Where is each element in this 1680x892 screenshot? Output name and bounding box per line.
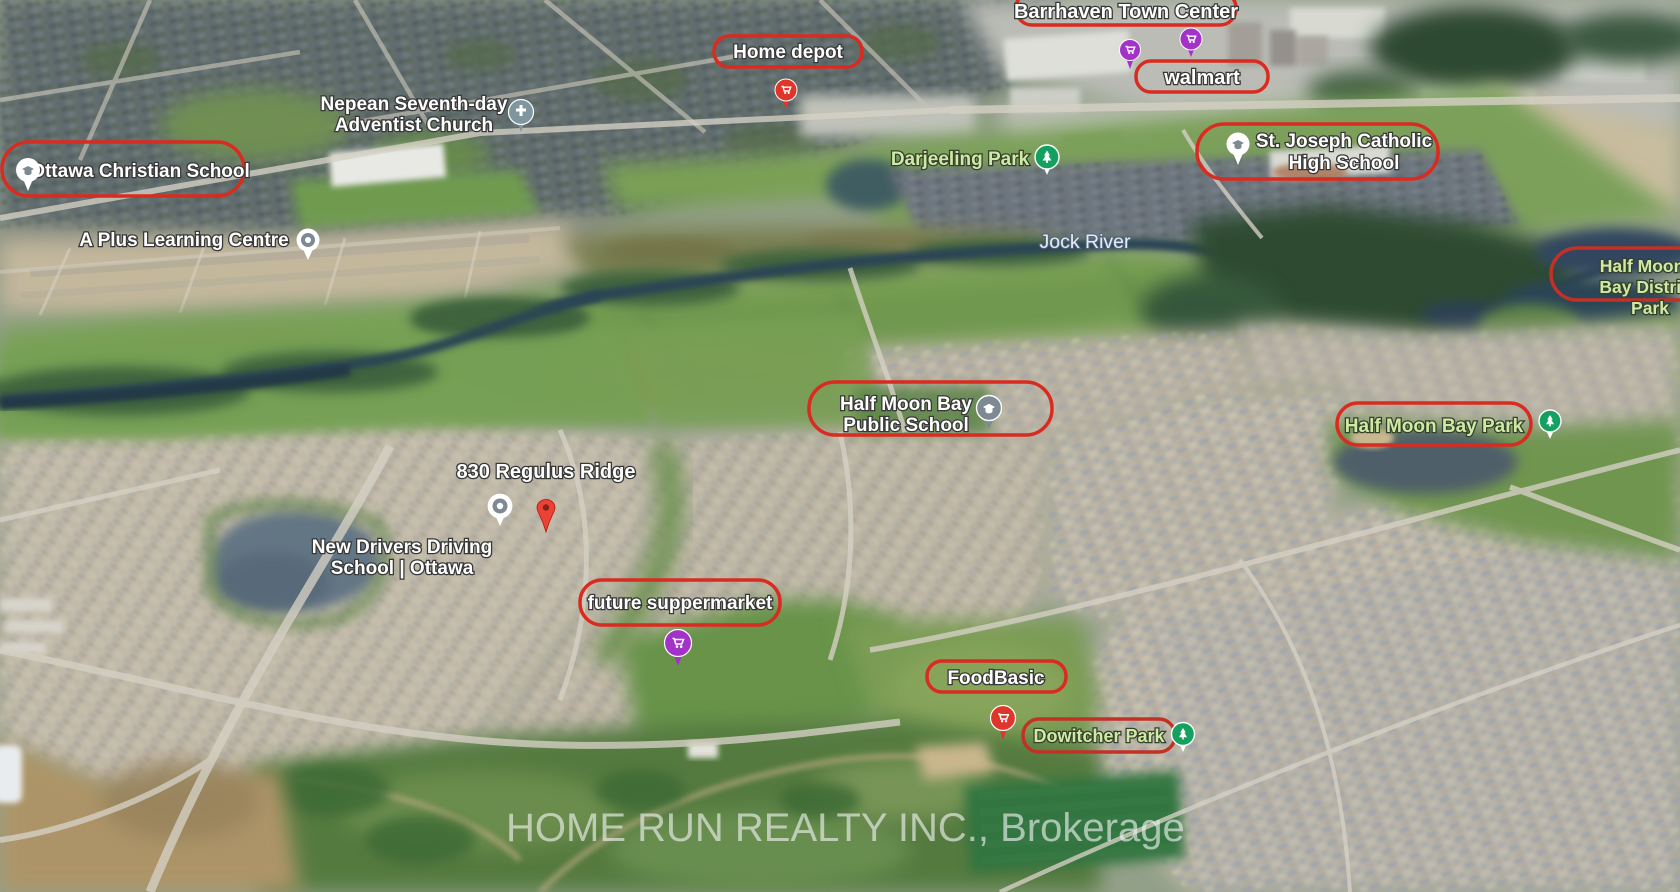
svg-text:School | Ottawa: School | Ottawa (331, 558, 474, 579)
svg-text:St. Joseph Catholic: St. Joseph Catholic (1256, 131, 1433, 152)
svg-text:A Plus Learning Centre: A Plus Learning Centre (79, 230, 288, 251)
svg-text:Half Moon Bay Park: Half Moon Bay Park (1345, 416, 1524, 437)
svg-text:HOME RUN REALTY INC., Brokerag: HOME RUN REALTY INC., Brokerage (506, 806, 1185, 850)
svg-text:Nepean Seventh-day: Nepean Seventh-day (321, 94, 508, 115)
svg-text:High School: High School (1289, 153, 1400, 174)
svg-text:walmart: walmart (1163, 67, 1240, 89)
svg-text:Jock River: Jock River (1039, 231, 1131, 253)
svg-text:Half Moon Bay: Half Moon Bay (840, 394, 972, 415)
svg-text:Half Moon: Half Moon (1600, 256, 1680, 276)
svg-text:Adventist Church: Adventist Church (335, 115, 493, 136)
svg-text:Darjeeling Park: Darjeeling Park (891, 149, 1030, 170)
svg-text:Barrhaven Town Center: Barrhaven Town Center (1014, 1, 1238, 23)
svg-text:Dowitcher Park: Dowitcher Park (1033, 726, 1165, 746)
svg-text:830 Regulus Ridge: 830 Regulus Ridge (457, 461, 636, 483)
svg-text:Home depot: Home depot (733, 42, 843, 63)
svg-text:Ottawa Christian School: Ottawa Christian School (30, 161, 250, 182)
svg-text:Park: Park (1631, 298, 1669, 318)
svg-text:FoodBasic: FoodBasic (947, 668, 1045, 689)
svg-text:Bay District: Bay District (1599, 277, 1680, 297)
svg-text:future suppermarket: future suppermarket (588, 593, 773, 614)
svg-text:New Drivers Driving: New Drivers Driving (312, 537, 493, 558)
svg-text:Public School: Public School (843, 415, 969, 436)
